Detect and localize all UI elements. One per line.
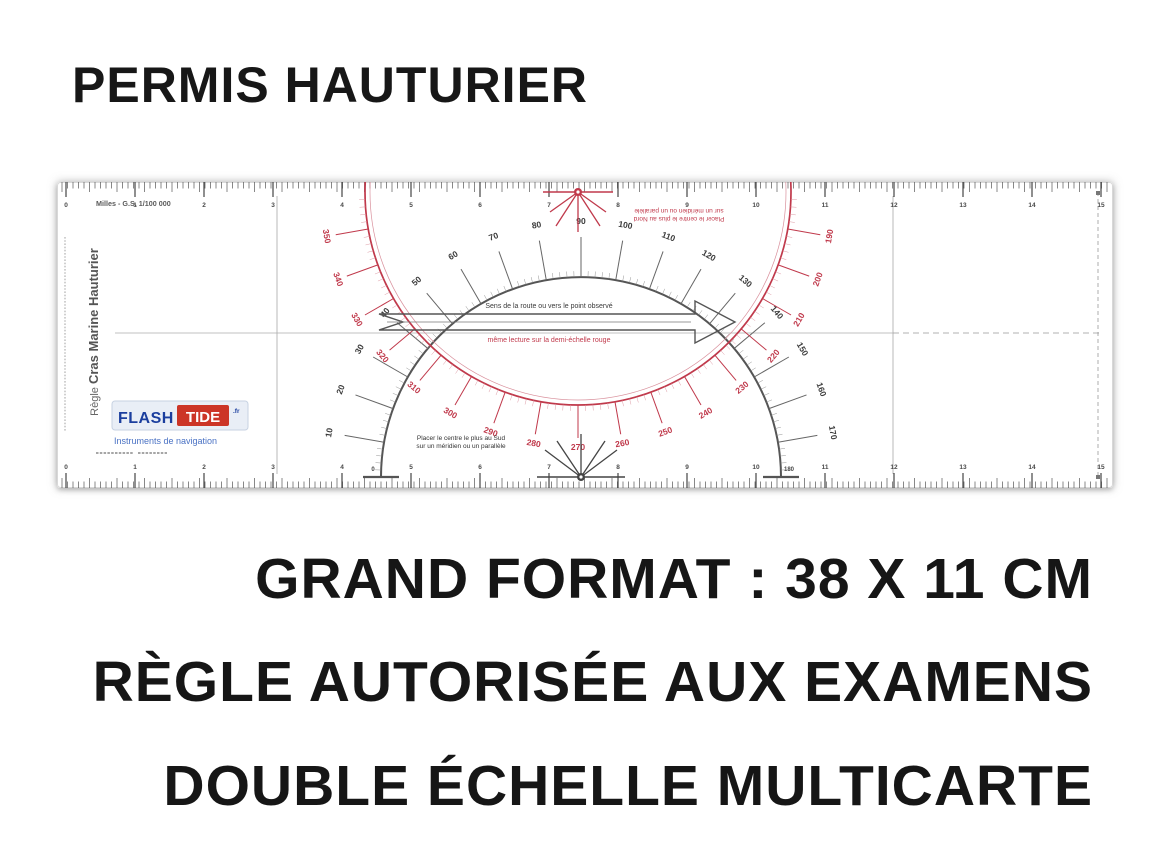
cras-ruler-drawing: 0011223344556677889910101111121213131414… — [57, 182, 1113, 488]
svg-text:5: 5 — [409, 464, 413, 471]
svg-text:5: 5 — [409, 202, 413, 209]
svg-text:Instruments de navigation: Instruments de navigation — [114, 436, 217, 446]
svg-text:2: 2 — [202, 202, 206, 209]
svg-text:4: 4 — [340, 464, 344, 471]
svg-text:12: 12 — [890, 202, 898, 209]
svg-text:12: 12 — [890, 464, 898, 471]
feature-line-format: GRAND FORMAT : 38 X 11 CM — [255, 546, 1093, 612]
svg-text:0: 0 — [64, 202, 68, 209]
svg-text:6: 6 — [478, 464, 482, 471]
svg-text:3: 3 — [271, 464, 275, 471]
svg-text:6: 6 — [478, 202, 482, 209]
page-title: PERMIS HAUTURIER — [72, 56, 588, 114]
svg-text:0: 0 — [64, 464, 68, 471]
side-label: Règle Cras Marine Hauturier — [86, 248, 101, 416]
feature-line-exam: RÈGLE AUTORISÉE AUX EXAMENS — [93, 649, 1093, 715]
svg-text:13: 13 — [959, 202, 967, 209]
svg-text:Règle Cras Marine Hauturier: Règle Cras Marine Hauturier — [86, 248, 101, 416]
svg-text:.fr: .fr — [233, 408, 240, 415]
svg-text:14: 14 — [1028, 202, 1036, 209]
svg-text:10: 10 — [752, 202, 760, 209]
cras-ruler-image: 0011223344556677889910101111121213131414… — [57, 182, 1113, 488]
svg-text:80: 80 — [531, 219, 542, 231]
svg-text:sur un méridien ou un parallèl: sur un méridien ou un parallèle — [416, 443, 506, 450]
svg-text:270: 270 — [571, 442, 585, 452]
svg-text:Sens de la route ou vers le po: Sens de la route ou vers le point observ… — [485, 303, 612, 310]
svg-text:15: 15 — [1097, 202, 1105, 209]
svg-text:13: 13 — [959, 464, 967, 471]
feature-line-scale: DOUBLE ÉCHELLE MULTICARTE — [163, 753, 1093, 819]
svg-text:7: 7 — [547, 464, 551, 471]
svg-text:8: 8 — [616, 464, 620, 471]
svg-text:8: 8 — [616, 202, 620, 209]
svg-text:11: 11 — [822, 202, 829, 209]
svg-text:Placer le centre le plus au Su: Placer le centre le plus au Sud — [417, 435, 506, 442]
svg-text:7: 7 — [547, 202, 551, 209]
svg-text:11: 11 — [822, 464, 829, 471]
svg-text:1: 1 — [133, 464, 137, 471]
svg-text:10: 10 — [323, 427, 335, 438]
svg-text:2: 2 — [202, 464, 206, 471]
svg-text:9: 9 — [685, 464, 689, 471]
svg-text:Placer le centre le plus au No: Placer le centre le plus au Nord — [633, 215, 724, 222]
svg-text:Milles - G.S. 1/100 000: Milles - G.S. 1/100 000 — [96, 199, 171, 208]
svg-text:3: 3 — [271, 202, 275, 209]
svg-text:TIDE: TIDE — [186, 409, 220, 426]
svg-text:10: 10 — [752, 464, 760, 471]
svg-text:sur un méridien ou un parallèl: sur un méridien ou un parallèle — [634, 207, 724, 214]
svg-text:4: 4 — [340, 202, 344, 209]
svg-text:14: 14 — [1028, 464, 1036, 471]
svg-text:même lecture sur la demi-échel: même lecture sur la demi-échelle rouge — [488, 337, 611, 344]
svg-text:FLASH: FLASH — [118, 410, 174, 427]
svg-text:15: 15 — [1097, 464, 1105, 471]
